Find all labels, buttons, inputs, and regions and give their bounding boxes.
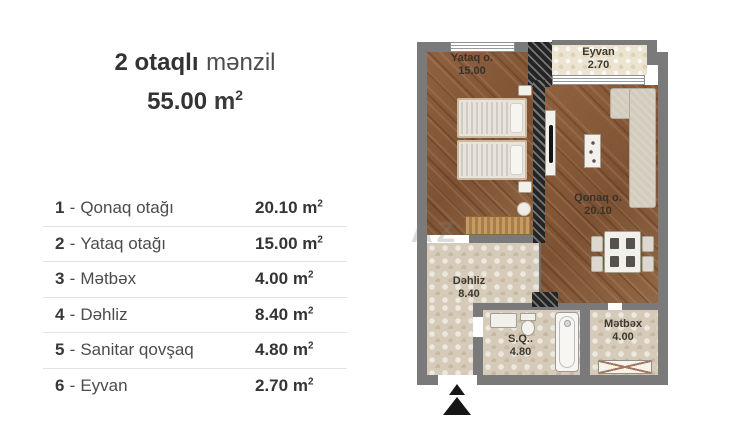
legend-row-area: 20.10 m2 [255,198,347,218]
room-label-living: Qonaq o. 20.10 [543,192,653,218]
shaft-lower [532,292,558,307]
dining-chair [642,256,654,272]
room-area: 15.00 [425,65,519,78]
legend-row: 3-Mətbəx 4.00 m2 [43,261,347,297]
room-area: 8.40 [427,288,511,301]
legend-row-label: 6-Eyvan [55,376,128,396]
room-legend: 1-Qonaq otağı 20.10 m2 2-Yataq otağı 15.… [43,191,347,403]
legend-row: 2-Yataq otağı 15.00 m2 [43,226,347,262]
dining-chair [591,256,603,272]
legend-row: 6-Eyvan 2.70 m2 [43,368,347,404]
legend-row: 4-Dəhliz 8.40 m2 [43,297,347,333]
kitchen-counter [598,360,652,374]
room-area: 4.80 [483,346,558,359]
placemat [610,238,619,249]
bed [457,140,527,180]
room-label-balcony: Eyvan 2.70 [552,46,645,72]
nightstand [518,181,532,193]
kitchen-wall-top-left [590,303,608,310]
placemat [626,256,635,267]
dining-chair [591,236,603,252]
bed [457,98,527,138]
page-title: 2 otaqlımənzil 55.00m2 [30,46,360,118]
room-name: Dəhliz [427,275,511,288]
coffee-table [584,134,601,168]
total-area-value: 55.00 [147,88,207,115]
apartment-type-line: 2 otaqlımənzil [30,46,360,79]
hallway-floor-lower [427,303,473,375]
placemat [626,238,635,249]
room-label-bathroom: S.Q.. 4.80 [483,333,558,359]
apartment-type-word: mənzil [206,49,275,76]
bedroom-living-wall [533,80,545,243]
nightstand [518,85,532,96]
floor-plan: AZ Yataq o. 15.00 Eyvan 2.70 Qonaq o. 20… [413,22,681,434]
legend-row-label: 2-Yataq otağı [55,234,166,254]
legend-row-area: 4.80 m2 [255,340,347,360]
apartment-rooms-count: 2 otaqlı [114,49,198,76]
bed-pillow [510,103,523,133]
legend-row-area: 15.00 m2 [255,234,347,254]
legend-row: 5-Sanitar qovşaq 4.80 m2 [43,332,347,368]
entrance-arrow-icon [449,384,465,395]
legend-row-area: 8.40 m2 [255,305,347,325]
corner-sofa-body [629,88,656,208]
legend-row-label: 1-Qonaq otağı [55,198,174,218]
wardrobe [465,216,531,235]
legend-row: 1-Qonaq otağı 20.10 m2 [43,191,347,226]
bathroom-wall-left-lower [473,337,483,375]
room-name: S.Q.. [483,333,558,346]
room-area: 2.70 [552,59,645,72]
side-table [517,202,531,216]
room-area: 20.10 [543,205,653,218]
wall-step-block [647,52,668,65]
bedroom-window [450,42,515,52]
bed-blanket [461,144,509,176]
bathroom-wall-left-upper [473,310,483,317]
legend-row-area: 4.00 m2 [255,269,347,289]
tv-stand [545,110,556,176]
bedroom-hall-wall [469,235,533,243]
dining-chair [642,236,654,252]
entrance-arrow-icon [443,397,471,415]
bed-pillow [510,145,523,175]
room-label-kitchen: Mətbəx 4.00 [590,318,656,344]
room-name: Mətbəx [590,318,656,331]
room-name: Yataq o. [425,52,519,65]
room-label-hallway: Dəhliz 8.40 [427,275,511,301]
room-label-bedroom: Yataq o. 15.00 [425,52,519,78]
bathtub-drain [564,320,571,327]
tv-icon [549,125,553,163]
sink [490,313,517,328]
room-name: Qonaq o. [543,192,653,205]
total-area-unit: m2 [214,88,243,115]
room-name: Eyvan [552,46,645,59]
legend-row-label: 5-Sanitar qovşaq [55,340,194,360]
watermark: AZ [411,216,459,250]
bathroom-kitchen-wall [580,310,590,375]
placemat [610,256,619,267]
wall-right [658,53,668,385]
kitchen-wall-top-right [622,303,658,310]
balcony-window [552,75,645,85]
total-area-line: 55.00m2 [30,79,360,118]
bed-blanket [461,102,509,134]
dining-table [604,231,641,273]
legend-row-area: 2.70 m2 [255,376,347,396]
room-area: 4.00 [590,331,656,344]
wall-left [417,42,427,385]
legend-row-label: 4-Dəhliz [55,305,128,325]
legend-row-label: 3-Mətbəx [55,269,136,289]
balcony-wall-top [552,40,648,45]
bathtub [555,312,579,372]
apartment-listing-graphic: 2 otaqlımənzil 55.00m2 1-Qonaq otağı 20.… [0,0,743,446]
